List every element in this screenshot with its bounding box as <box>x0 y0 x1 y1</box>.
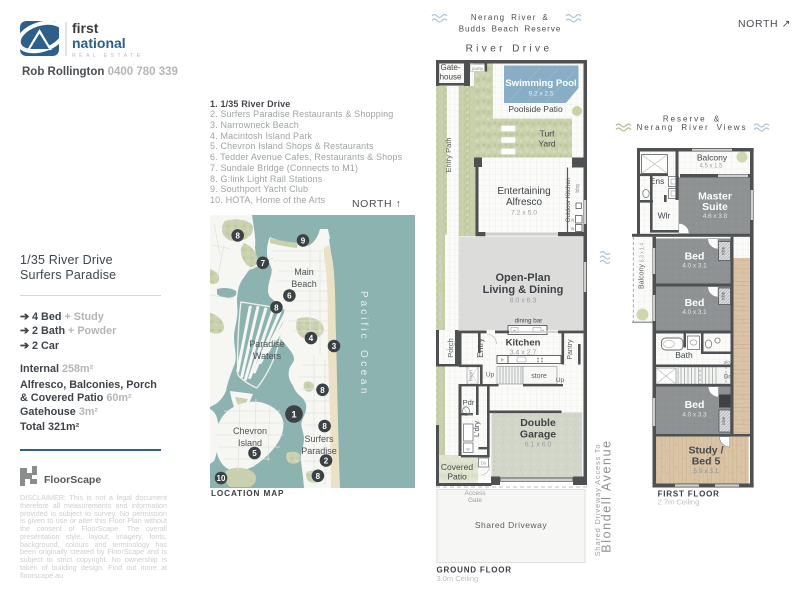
svg-text:Bed: Bed <box>685 399 705 411</box>
svg-text:Poolside Patio: Poolside Patio <box>508 104 563 114</box>
svg-text:Nerang River Views: Nerang River Views <box>637 123 748 132</box>
svg-text:linen: linen <box>469 370 475 381</box>
svg-text:4.0 x 3.3: 4.0 x 3.3 <box>682 412 707 419</box>
svg-text:Covered: Covered <box>441 462 473 472</box>
svg-text:6: 6 <box>287 292 292 301</box>
svg-text:Nerang River &: Nerang River & <box>471 13 549 22</box>
svg-text:Outdoor Kitchen: Outdoor Kitchen <box>565 177 572 222</box>
svg-text:Wlr: Wlr <box>658 211 671 221</box>
svg-text:9.2 x 2.5: 9.2 x 2.5 <box>529 91 554 98</box>
svg-text:3.0m Ceiling: 3.0m Ceiling <box>437 574 479 583</box>
svg-text:6.1 x 6.0: 6.1 x 6.0 <box>525 442 552 449</box>
svg-text:5: 5 <box>252 449 257 458</box>
svg-text:Open-Plan: Open-Plan <box>495 272 550 284</box>
svg-text:Blondell Avenue: Blondell Avenue <box>600 439 614 552</box>
svg-text:Living & Dining: Living & Dining <box>483 284 564 296</box>
svg-text:national: national <box>72 35 126 51</box>
svg-text:Surfers: Surfers <box>304 434 334 444</box>
svg-text:Up: Up <box>556 377 565 384</box>
svg-text:Balcony: Balcony <box>697 153 728 163</box>
svg-text:first: first <box>72 20 99 36</box>
svg-text:pump: pump <box>472 66 483 71</box>
svg-text:Ocean: Ocean <box>358 350 369 397</box>
svg-text:Suite: Suite <box>702 201 728 213</box>
svg-text:River Drive: River Drive <box>466 44 553 55</box>
svg-text:REAL ESTATE: REAL ESTATE <box>72 53 144 59</box>
svg-text:2.7m Ceiling: 2.7m Ceiling <box>658 498 700 507</box>
svg-text:8: 8 <box>322 422 327 431</box>
svg-text:Porch: Porch <box>446 338 455 358</box>
svg-text:8: 8 <box>316 472 321 481</box>
svg-text:Main: Main <box>294 267 314 277</box>
svg-text:7: 7 <box>261 259 266 268</box>
svg-text:Beach: Beach <box>291 279 317 289</box>
svg-text:4.0 x 3.1: 4.0 x 3.1 <box>682 309 707 316</box>
svg-text:Bed: Bed <box>685 251 705 263</box>
svg-text:Access: Access <box>465 490 487 497</box>
svg-text:Up: Up <box>486 372 495 379</box>
svg-text:Alfresco: Alfresco <box>506 197 543 208</box>
svg-text:bbq: bbq <box>575 184 581 193</box>
svg-text:dining bar: dining bar <box>515 318 543 325</box>
svg-text:Kitchen: Kitchen <box>506 338 541 349</box>
svg-text:4.6 x 3.8: 4.6 x 3.8 <box>703 213 728 220</box>
svg-text:Balcony 6.3 x 1.4: Balcony 6.3 x 1.4 <box>639 243 646 289</box>
svg-text:4.0 x 3.1: 4.0 x 3.1 <box>682 263 707 270</box>
svg-text:Patio: Patio <box>447 472 467 482</box>
svg-text:FloorScape: FloorScape <box>44 474 101 486</box>
svg-text:2: 2 <box>324 457 329 466</box>
svg-text:robe: robe <box>721 416 726 425</box>
svg-text:Bed: Bed <box>685 297 705 309</box>
svg-text:Gate-: Gate- <box>440 63 460 72</box>
svg-text:Bath: Bath <box>675 350 693 360</box>
svg-text:Pacific: Pacific <box>358 291 369 341</box>
svg-text:8: 8 <box>320 386 325 395</box>
svg-text:Paradise: Paradise <box>249 339 285 349</box>
svg-text:3: 3 <box>332 342 337 351</box>
svg-text:robe: robe <box>721 291 726 300</box>
svg-text:10: 10 <box>217 474 226 483</box>
svg-text:Chevron: Chevron <box>233 426 267 436</box>
svg-text:Gate: Gate <box>468 497 482 504</box>
svg-text:8: 8 <box>235 231 240 240</box>
svg-text:Island: Island <box>238 438 262 448</box>
svg-text:9: 9 <box>301 236 306 245</box>
svg-text:4: 4 <box>309 334 314 343</box>
svg-text:robe: robe <box>721 246 726 255</box>
svg-text:Paradise: Paradise <box>301 446 337 456</box>
svg-text:Ds: Ds <box>481 461 487 466</box>
svg-text:1: 1 <box>291 410 297 421</box>
svg-text:store: store <box>531 373 547 380</box>
svg-text:Pdr: Pdr <box>463 398 475 407</box>
svg-text:Waters: Waters <box>253 351 282 361</box>
svg-text:Shared Driveway: Shared Driveway <box>475 520 547 530</box>
svg-text:Double: Double <box>520 417 556 429</box>
svg-text:Entry Path: Entry Path <box>444 137 453 172</box>
svg-text:Entertaining: Entertaining <box>497 186 550 197</box>
svg-text:Turf: Turf <box>540 129 555 139</box>
svg-text:Pantry: Pantry <box>567 339 574 360</box>
svg-text:Garage: Garage <box>520 429 556 441</box>
svg-text:Yard: Yard <box>538 139 556 149</box>
svg-text:Swimming Pool: Swimming Pool <box>505 78 576 89</box>
svg-text:5.9 x 3.1: 5.9 x 3.1 <box>694 468 719 475</box>
svg-text:Bed 5: Bed 5 <box>692 456 721 468</box>
svg-text:8: 8 <box>274 303 279 312</box>
svg-text:Budds Beach Reserve: Budds Beach Reserve <box>459 25 562 34</box>
svg-text:4.5 x 1.5: 4.5 x 1.5 <box>699 164 723 170</box>
svg-text:7.2 x 5.0: 7.2 x 5.0 <box>511 210 537 217</box>
svg-text:house: house <box>440 73 462 82</box>
svg-text:8.0 x 6.3: 8.0 x 6.3 <box>510 298 537 305</box>
